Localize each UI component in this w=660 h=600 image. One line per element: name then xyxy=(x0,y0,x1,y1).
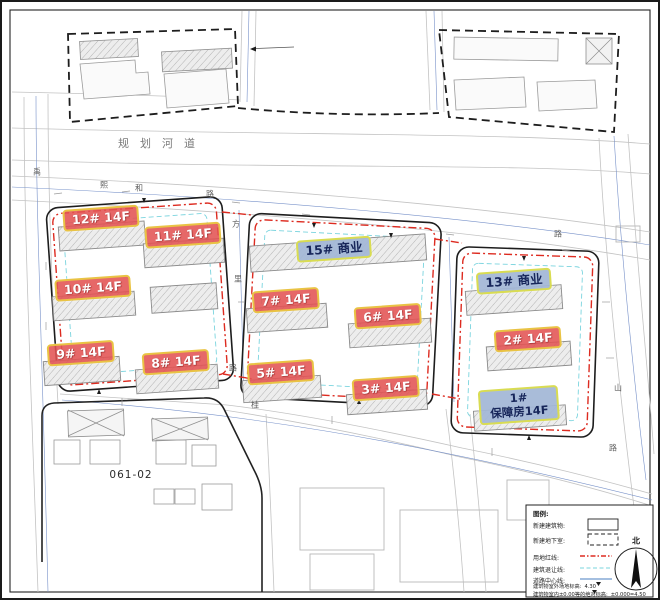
site-plan: 规划河道 熙 和 路 方 里 路 山 路 路 桂 禹 061-02 北 12# … xyxy=(0,0,660,600)
parcel-061-02 xyxy=(42,398,262,592)
road-name-char: 路 xyxy=(206,189,214,200)
parcel-id-label: 061-02 xyxy=(109,469,152,481)
north-label: 北 xyxy=(632,536,640,547)
road-name-char: 禹 xyxy=(33,167,41,178)
entrance-annotation-line xyxy=(256,47,294,49)
road-name-char: 熙 xyxy=(100,180,108,191)
legend-item-indoor-elevation: 建筑物室内±0.00等的绝对标高:±0.000=4.50 xyxy=(533,591,646,598)
road-name-char: 里 xyxy=(234,274,242,285)
adjacent-parcel-buildings xyxy=(80,37,612,111)
road-name-char: 山 xyxy=(614,383,622,394)
legend-item-new-building: 新建建筑物: xyxy=(533,521,565,530)
site-plan-drawing xyxy=(2,2,658,598)
road-name-char: 路 xyxy=(554,229,562,240)
building-label-1-type: 保障房14F xyxy=(490,403,549,421)
outdoor-elevation-value: 4.30 xyxy=(584,584,596,590)
road-name-char: 路 xyxy=(229,363,237,374)
road-name-char: 方 xyxy=(232,219,240,230)
legend-title: 图例: xyxy=(533,508,549,518)
building-label-1: 1# 保障房14F xyxy=(478,385,561,425)
road-name-char: 路 xyxy=(609,443,617,454)
road-name-char: 和 xyxy=(135,183,143,194)
legend-item-red-line: 用地红线: xyxy=(533,553,559,562)
road-name-char: 桂 xyxy=(251,400,259,411)
legend-item-outdoor-elevation: 建筑物室外场地标高:4.30 xyxy=(533,583,596,590)
indoor-elevation-value: ±0.000=4.50 xyxy=(611,592,646,598)
river-label: 规划河道 xyxy=(118,135,206,151)
legend-item-basement: 新建地下室: xyxy=(533,536,565,545)
legend-item-setback-line: 建筑退让线: xyxy=(533,565,565,574)
